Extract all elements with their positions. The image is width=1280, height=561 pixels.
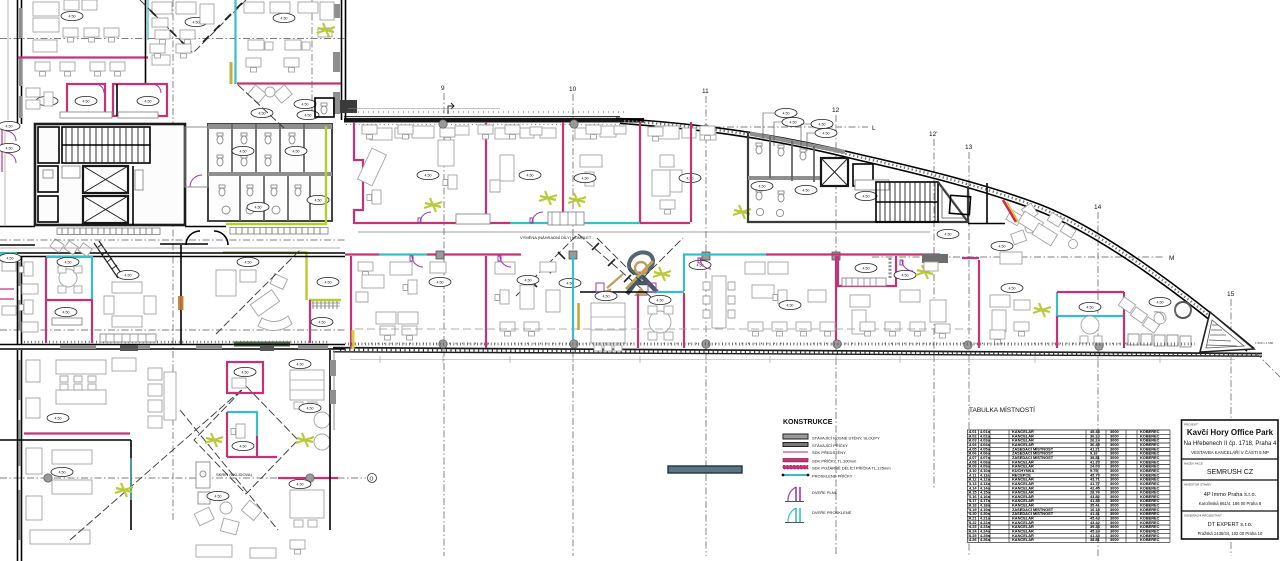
svg-text:DVEŘE PROSKLENÉ: DVEŘE PROSKLENÉ (812, 510, 852, 515)
svg-text:O: O (370, 477, 374, 483)
svg-text:KANCELÁŘ: KANCELÁŘ (1012, 537, 1034, 542)
svg-text:SDK PŘÍČKY TL.100mm: SDK PŘÍČKY TL.100mm (812, 459, 857, 464)
svg-text:4.26: 4.26 (969, 537, 977, 542)
svg-text:DT EXPERT s.r.o.: DT EXPERT s.r.o. (1208, 522, 1253, 528)
svg-text:L: L (872, 125, 876, 132)
svg-text:PROJEKT: PROJEKT (1184, 423, 1198, 427)
svg-text:VESTAVBA KANCELÁŘÍ V ČÁSTI 5.N: VESTAVBA KANCELÁŘÍ V ČÁSTI 5.NP (1191, 450, 1269, 455)
svg-text:10: 10 (569, 86, 577, 93)
svg-text:INVESTOR STAVBY: INVESTOR STAVBY (1184, 483, 1212, 487)
svg-text:15: 15 (1227, 291, 1235, 298)
svg-text:DVEŘE PLNÉ: DVEŘE PLNÉ (812, 490, 838, 495)
svg-text:NAZEV AKCE: NAZEV AKCE (1184, 462, 1203, 466)
svg-text:Na Hřebenech II čp. 1718, Prah: Na Hřebenech II čp. 1718, Praha 4 (1184, 441, 1277, 447)
svg-text:14: 14 (1094, 204, 1102, 211)
svg-text:VÝMĚNA (NÁHRADNÍ DÍLY) KOMPLET: VÝMĚNA (NÁHRADNÍ DÍLY) KOMPLET (520, 235, 592, 240)
svg-text:9: 9 (441, 85, 445, 92)
svg-text:SEMRUSH CZ: SEMRUSH CZ (1207, 469, 1254, 476)
svg-text:3000: 3000 (1110, 537, 1119, 542)
svg-text:1 500 x 1 500: 1 500 x 1 500 (1255, 341, 1274, 345)
svg-text:13: 13 (965, 144, 973, 151)
svg-text:4P Immo Praha s.r.o.: 4P Immo Praha s.r.o. (1204, 492, 1257, 498)
svg-text:M: M (1169, 255, 1174, 262)
svg-text:PROSKLENÉ PŘÍČKY: PROSKLENÉ PŘÍČKY (812, 474, 853, 479)
svg-text:KONSTRUKCE: KONSTRUKCE (783, 419, 833, 426)
svg-text:GENERALNI PROJEKTANT: GENERALNI PROJEKTANT (1184, 514, 1222, 518)
svg-text:SDK PŘEDSTĚNY: SDK PŘEDSTĚNY (812, 450, 846, 455)
svg-text:SDK POŽÁRNĚ DĚLÍCÍ PŘÍČKA TL.1: SDK POŽÁRNĚ DĚLÍCÍ PŘÍČKA TL.125mm (812, 466, 891, 471)
svg-text:4.26a: 4.26a (980, 537, 991, 542)
svg-text:STÁVAJÍCÍ PŘÍČKY: STÁVAJÍCÍ PŘÍČKY (812, 443, 848, 448)
svg-text:SKRIN (UKLIDOVA): SKRIN (UKLIDOVA) (216, 472, 253, 477)
svg-text:12: 12 (832, 107, 840, 114)
svg-text:11: 11 (702, 88, 709, 95)
svg-text:TABULKA MÍSTNOSTÍ: TABULKA MÍSTNOSTÍ (969, 405, 1035, 414)
svg-text:STÁVAJÍCÍ NOSNÉ STĚNY, SLOUPY: STÁVAJÍCÍ NOSNÉ STĚNY, SLOUPY (812, 436, 880, 441)
svg-text:Karolínská 661/4, 186 00 Praha: Karolínská 661/4, 186 00 Praha 8 (1199, 501, 1262, 506)
svg-text:Kavčí Hory Office Park: Kavčí Hory Office Park (1187, 428, 1274, 437)
svg-text:Pražská 1435/34, 102 00 Praha: Pražská 1435/34, 102 00 Praha 10 (1198, 531, 1263, 536)
svg-text:38.81: 38.81 (1090, 537, 1101, 542)
svg-text:KOBEREC: KOBEREC (1140, 537, 1160, 542)
svg-text:12': 12' (929, 131, 937, 138)
